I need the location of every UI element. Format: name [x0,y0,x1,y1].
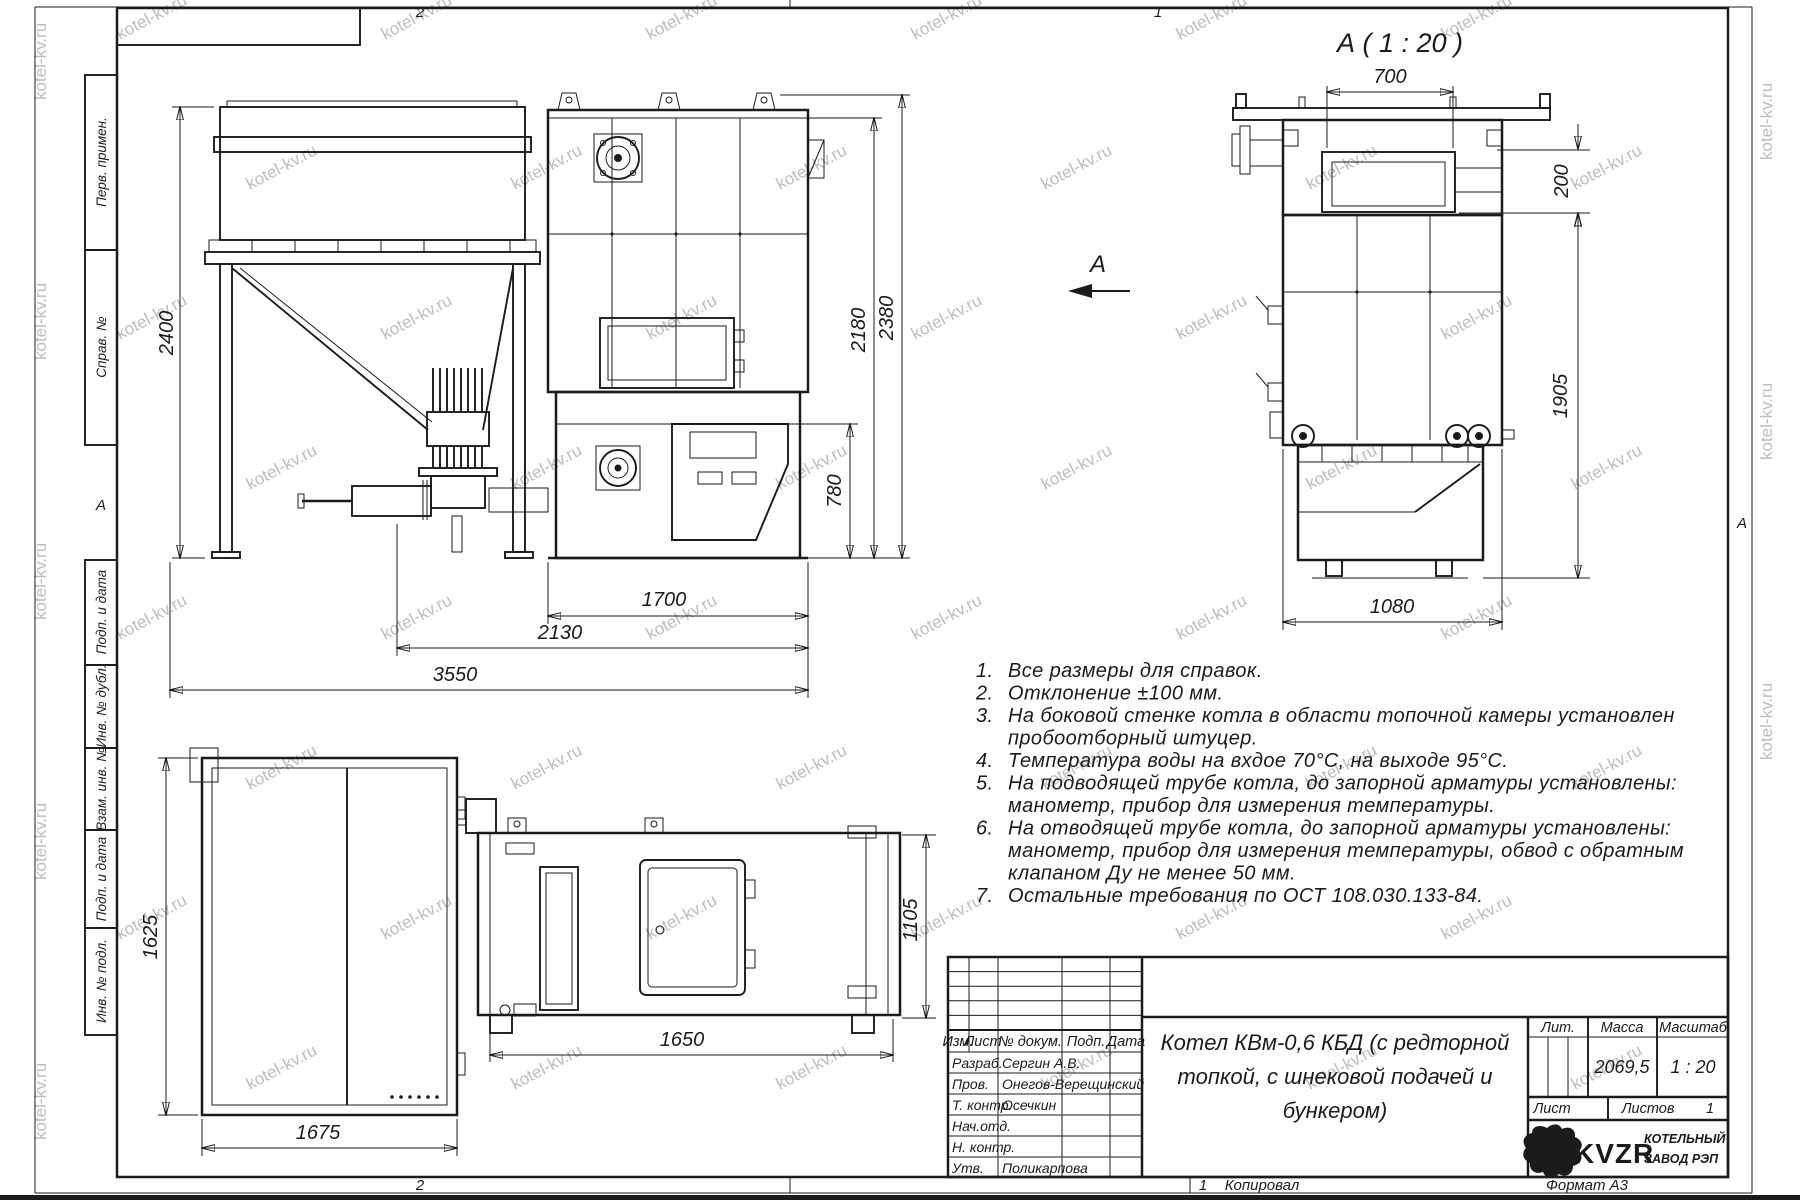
company-logo-text: KVZR [1574,1138,1654,1169]
dim-bunker-height: 2400 [156,311,178,357]
watermark: kotel-kv.ru [378,591,455,644]
note-line: Отклонение ±100 мм. [1008,683,1223,705]
dim-rear-width: 1080 [1370,596,1415,618]
top-zone-1: 1 [1154,4,1162,21]
plan-view: 1625 1675 [140,748,465,1156]
section-arrow: А [1068,251,1130,298]
tb-row-label: Нач.отд. [952,1118,1011,1134]
watermark: kotel-kv.ru [773,741,850,794]
watermark: kotel-kv.ru [908,591,985,644]
watermark: kotel-kv.ru [243,441,320,494]
view-a: А ( 1 : 20 ) [1232,28,1590,630]
watermark: kotel-kv.ru [908,291,985,344]
bottom-sheet-no: 1 [1199,1177,1207,1194]
copied-label: Копировал [1225,1177,1300,1194]
note-number: 1. [976,660,993,682]
watermark: kotel-kv.ru [508,741,585,794]
watermark: kotel-kv.ru [31,283,50,360]
watermark: kotel-kv.ru [1438,591,1515,644]
watermark: kotel-kv.ru [643,291,720,344]
tb-lit-label: Лит. [1540,1020,1575,1036]
note-line: пробоотборный штуцер. [1008,728,1258,750]
tb-row-name: Осечкин [1002,1097,1057,1113]
watermark: kotel-kv.ru [113,291,190,344]
margin-label-inv-dubl: Инв. № дубл. [94,664,109,747]
note-line: клапаном Ду не менее 50 мм. [1008,863,1296,885]
tb-header-doc: № докум. [998,1034,1062,1050]
rear-pipe-flange [1240,126,1250,174]
side-stub [466,799,496,833]
screw-feeder [298,368,548,552]
margin-label-inv-podl: Инв. № подл. [94,939,109,1023]
plan-outline [190,748,465,1115]
top-zone-2: 2 [415,4,425,21]
view-a-dimensions: 700 200 1905 1080 [1283,66,1590,630]
watermark: kotel-kv.ru [243,741,320,794]
drawing-sheet: kotel-kv.rukotel-kv.rukotel-kv.rukotel-k… [0,0,1800,1200]
margin-label-sprav-no: Справ. № [94,316,109,378]
tb-row-name: Онегов-Верещинский [1002,1076,1144,1092]
dim-opening-width: 700 [1373,66,1406,88]
company-name-line2: ЗАВОД РЭП [1644,1152,1719,1166]
watermark: kotel-kv.ru [1568,141,1645,194]
tb-sheet-label: Лист [1532,1101,1570,1117]
bottom-zone-2: 2 [415,1177,425,1194]
dim-total-length: 3550 [433,664,478,686]
view-a-title: А ( 1 : 20 ) [1335,28,1463,58]
company-name-line1: КОТЕЛЬНЫЙ [1644,1130,1726,1146]
dim-side-height: 1105 [900,898,922,942]
side-dimensions: 1105 1650 [490,835,936,1062]
dim-feed-length: 2130 [537,622,583,644]
bottom-strip: 1 Копировал Формат А3 [1199,1177,1629,1194]
note-line: На боковой стенке котла в области топочн… [1008,705,1675,727]
dim-boiler-length: 1700 [642,589,687,611]
margin-label-podp-data-2: Подп. и дата [94,836,109,921]
dim-top-offset: 200 [1551,164,1573,198]
inner-frame [117,8,1728,1177]
watermark: kotel-kv.ru [243,1041,320,1094]
ash-hopper [672,424,788,540]
watermark: kotel-kv.ru [243,141,320,194]
watermark: kotel-kv.ru [1568,441,1645,494]
feeder-motor [352,486,431,516]
note-line: манометр, прибор для измерения температу… [1008,795,1495,817]
watermark: kotel-kv.ru [1303,441,1380,494]
margin-label-perv-primen: Перв. примен. [94,117,109,207]
tb-sheets-value: 1 [1706,1101,1714,1117]
watermark: kotel-kv.ru [1757,83,1776,160]
note-line: манометр, прибор для измерения температу… [1008,840,1684,862]
tb-header-sign: Подп. [1067,1034,1106,1050]
dim-lower-height: 780 [824,474,846,507]
watermark: kotel-kv.ru [1038,441,1115,494]
tb-row-label: Утв. [951,1160,984,1176]
watermark: kotel-kv.ru [378,891,455,944]
tb-scale-value: 1 : 20 [1670,1057,1715,1077]
dim-side-length: 1650 [660,1029,705,1051]
tb-row-name: Поликарпова [1002,1160,1088,1176]
note-number: 7. [976,885,993,907]
tb-row-name: Сергин А.В. [1002,1055,1080,1071]
watermark: kotel-kv.ru [773,1041,850,1094]
dim-body-height: 2180 [848,308,870,354]
watermark: kotel-kv.ru [378,291,455,344]
watermark: kotel-kv.ru [1438,291,1515,344]
tb-header-list: Лист [963,1034,1001,1050]
watermark: kotel-kv.ru [1303,141,1380,194]
title-block: Изм. Лист № докум. Подп. Дата Разраб. Се… [943,957,1728,1178]
margin-label-vzam-inv: Взам. инв. № [94,747,109,831]
notes-layer: 1.Все размеры для справок.2.Отклонение ±… [975,660,1684,907]
note-number: 4. [976,750,993,772]
doc-title-line3: бункером) [1283,1098,1388,1123]
side-view: 1105 1650 [458,799,936,1062]
tb-mass-value: 2069,5 [1593,1057,1650,1077]
note-line: Все размеры для справок. [1008,660,1263,682]
company-logo-icon [1523,1124,1582,1178]
watermark: kotel-kv.ru [113,591,190,644]
note-line: Температура воды на вхдое 70°С, на выход… [1008,750,1508,772]
tb-sheets-label: Листов [1621,1101,1675,1117]
tb-mass-label: Масса [1601,1020,1644,1036]
watermark: kotel-kv.ru [508,1041,585,1094]
tb-header-date: Дата [1105,1034,1145,1050]
note-line: На отводящей трубе котла, до запорной ар… [1008,818,1671,840]
note-number: 5. [976,773,993,795]
tb-scale-label: Масштаб [1659,1020,1728,1036]
watermark: kotel-kv.ru [1757,383,1776,460]
watermark: kotel-kv.ru [1173,591,1250,644]
watermark: kotel-kv.ru [508,441,585,494]
zone-marker-left: А [95,497,106,514]
watermark: kotel-kv.ru [31,1063,50,1140]
format-label: Формат А3 [1546,1177,1629,1194]
watermark: kotel-kv.ru [1757,683,1776,760]
section-arrow-label: А [1088,251,1106,278]
note-number: 6. [976,818,993,840]
dim-rear-height: 1905 [1550,373,1572,418]
drawing-canvas: kotel-kv.rukotel-kv.rukotel-kv.rukotel-k… [0,0,1800,1200]
doc-title-line2: топкой, с шнековой подачей и [1178,1064,1493,1089]
note-line: На подводящей трубе котла, до запорной а… [1008,773,1677,795]
scan-edge [0,1195,1800,1200]
watermark: kotel-kv.ru [31,23,50,100]
note-line: Остальные требования по ОСТ 108.030.133-… [1008,885,1483,907]
note-number: 2. [975,683,993,705]
watermarks-layer: kotel-kv.rukotel-kv.rukotel-kv.rukotel-k… [31,0,1776,1140]
doc-title-line1: Котел КВм-0,6 КБД (с редторной [1161,1030,1510,1055]
tb-row-label: Н. контр. [952,1139,1015,1155]
watermark: kotel-kv.ru [31,543,50,620]
dim-plan-width: 1675 [296,1122,341,1144]
watermark: kotel-kv.ru [1173,291,1250,344]
note-number: 3. [976,705,993,727]
dim-plan-depth: 1625 [140,914,162,959]
watermark: kotel-kv.ru [773,141,850,194]
watermark: kotel-kv.ru [1038,141,1115,194]
margin-label-podp-data-1: Подп. и дата [94,569,109,654]
watermark: kotel-kv.ru [508,141,585,194]
watermark: kotel-kv.ru [31,803,50,880]
dim-total-height: 2380 [876,296,898,342]
left-margin-column: Перв. примен. Справ. № Подп. и дата Инв.… [85,75,117,1035]
tb-row-label: Разраб. [952,1055,1003,1071]
watermark: kotel-kv.ru [643,891,720,944]
zone-marker-right: А [1736,515,1747,532]
tb-row-label: Пров. [952,1076,989,1092]
